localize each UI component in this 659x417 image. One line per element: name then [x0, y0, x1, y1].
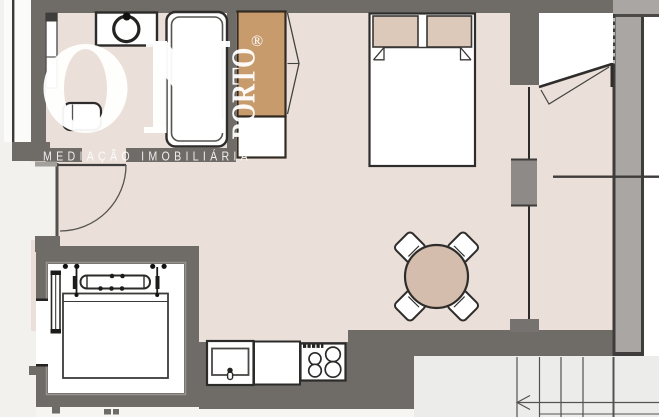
svg-text:PORTO: PORTO: [226, 48, 263, 140]
svg-text:®: ®: [251, 33, 263, 50]
svg-text:MEDIAÇÃO IMOBILIÁRIA: MEDIAÇÃO IMOBILIÁRIA: [43, 149, 252, 164]
